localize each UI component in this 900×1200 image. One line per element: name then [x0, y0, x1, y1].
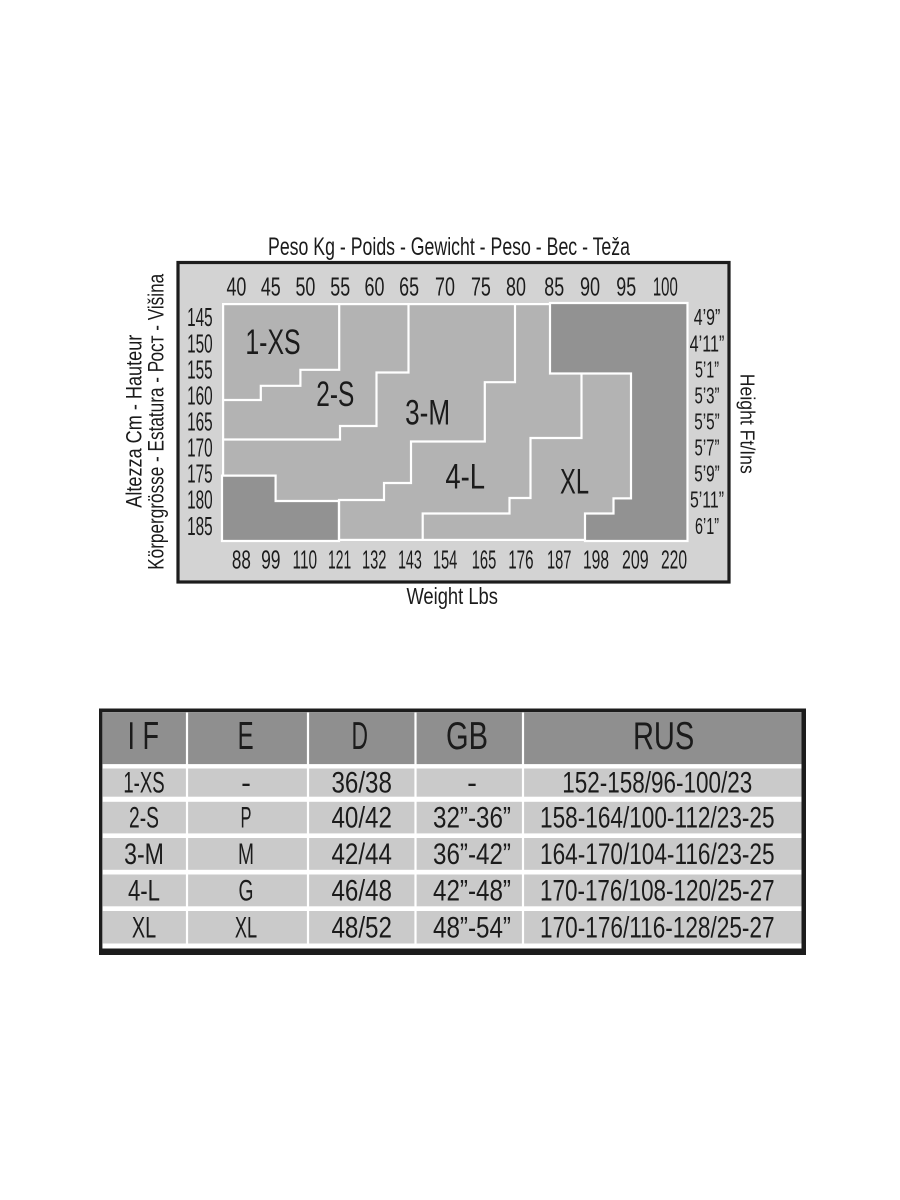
svg-text:85: 85 [544, 272, 564, 302]
svg-text:5’9”: 5’9” [694, 461, 720, 487]
svg-text:46/48: 46/48 [331, 875, 392, 908]
svg-text:4’9”: 4’9” [694, 304, 721, 330]
svg-text:176: 176 [508, 545, 533, 575]
svg-text:5’11”: 5’11” [690, 487, 724, 513]
svg-text:170-176/116-128/25-27: 170-176/116-128/25-27 [540, 911, 775, 944]
svg-text:M: M [238, 838, 254, 871]
svg-text:185: 185 [187, 511, 213, 541]
svg-text:5’1”: 5’1” [695, 356, 719, 382]
svg-text:110: 110 [293, 545, 318, 575]
svg-text:E: E [238, 715, 254, 758]
svg-text:187: 187 [547, 545, 572, 575]
svg-text:48”-54”: 48”-54” [433, 911, 511, 944]
svg-text:154: 154 [433, 545, 458, 575]
svg-text:90: 90 [580, 272, 600, 302]
svg-text:164-170/104-116/23-25: 164-170/104-116/23-25 [540, 838, 775, 871]
svg-text:48/52: 48/52 [331, 911, 392, 944]
svg-text:220: 220 [661, 545, 687, 575]
svg-text:152-158/96-100/23: 152-158/96-100/23 [562, 767, 752, 800]
svg-text:50: 50 [295, 272, 315, 302]
svg-text:165: 165 [472, 545, 497, 575]
svg-text:RUS: RUS [633, 715, 694, 758]
svg-text:99: 99 [261, 545, 280, 575]
svg-text:95: 95 [616, 272, 636, 302]
svg-text:40/42: 40/42 [331, 802, 392, 835]
svg-text:32”-36”: 32”-36” [433, 802, 511, 835]
svg-text:4-L: 4-L [445, 458, 485, 497]
svg-text:Peso Kg - Poids - Gewicht - Pe: Peso Kg - Poids - Gewicht - Peso - Bec -… [268, 233, 630, 261]
svg-text:4’11”: 4’11” [690, 330, 725, 356]
svg-text:-: - [467, 767, 477, 800]
svg-text:G: G [239, 875, 254, 908]
svg-text:P: P [241, 802, 252, 835]
svg-text:100: 100 [653, 272, 678, 302]
svg-text:40: 40 [226, 272, 246, 302]
svg-text:80: 80 [506, 272, 526, 302]
svg-text:XL: XL [132, 911, 156, 944]
svg-text:3-M: 3-M [405, 393, 450, 432]
svg-text:1-XS: 1-XS [123, 767, 164, 800]
svg-text:65: 65 [399, 272, 419, 302]
svg-text:Weight Lbs: Weight Lbs [406, 583, 498, 609]
svg-text:GB: GB [446, 715, 488, 758]
svg-text:158-164/100-112/23-25: 158-164/100-112/23-25 [540, 802, 775, 835]
svg-text:42/44: 42/44 [331, 838, 392, 871]
svg-text:1-XS: 1-XS [245, 323, 300, 362]
svg-text:60: 60 [365, 272, 385, 302]
svg-text:36/38: 36/38 [331, 767, 392, 800]
svg-text:132: 132 [362, 545, 387, 575]
svg-text:I F: I F [127, 715, 159, 758]
svg-text:2-S: 2-S [129, 802, 159, 835]
svg-text:Körpergrösse - Estatura - Рост: Körpergrösse - Estatura - Рост - Višina [144, 273, 169, 570]
svg-text:70: 70 [435, 272, 455, 302]
svg-text:4-L: 4-L [128, 875, 160, 908]
svg-text:143: 143 [398, 545, 422, 575]
svg-text:36”-42”: 36”-42” [433, 838, 511, 871]
svg-text:198: 198 [583, 545, 609, 575]
svg-text:42”-48”: 42”-48” [433, 875, 511, 908]
svg-text:XL: XL [560, 462, 589, 501]
svg-text:170-176/108-120/25-27: 170-176/108-120/25-27 [540, 875, 775, 908]
svg-text:45: 45 [261, 272, 281, 302]
svg-text:75: 75 [471, 272, 491, 302]
svg-text:XL: XL [235, 911, 257, 944]
svg-text:5’5”: 5’5” [694, 409, 720, 435]
svg-text:209: 209 [622, 545, 649, 575]
svg-text:5’3”: 5’3” [695, 382, 720, 408]
svg-text:121: 121 [328, 545, 351, 575]
svg-text:55: 55 [330, 272, 350, 302]
svg-text:-: - [241, 767, 251, 800]
svg-text:6’1”: 6’1” [695, 513, 719, 539]
svg-text:2-S: 2-S [316, 375, 354, 414]
svg-text:5’7”: 5’7” [695, 435, 720, 461]
svg-text:D: D [351, 715, 368, 758]
svg-text:Height Ft/Ins: Height Ft/Ins [736, 374, 758, 474]
svg-text:3-M: 3-M [124, 838, 164, 871]
svg-text:88: 88 [232, 545, 251, 575]
